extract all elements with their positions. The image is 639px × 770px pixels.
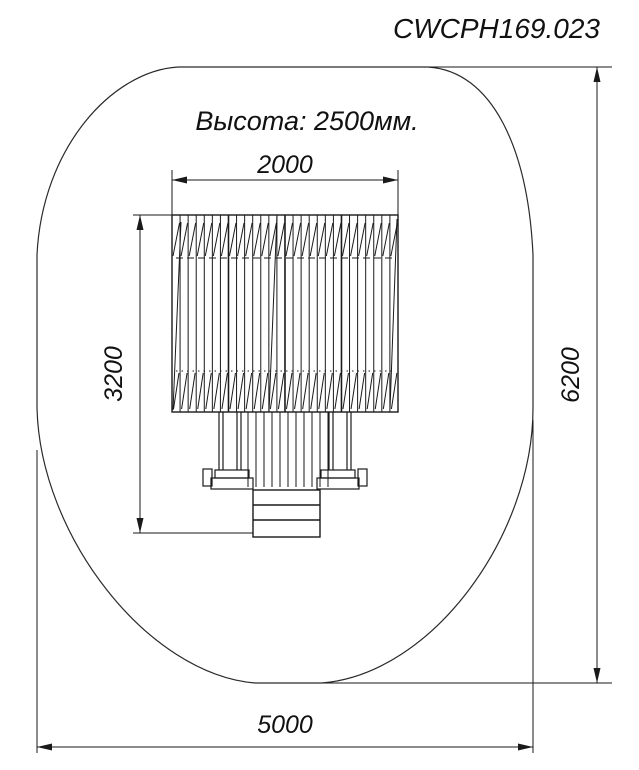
platform-slats	[248, 412, 328, 487]
dimension-6200-label: 6200	[557, 347, 585, 403]
roof-slat-edge-bottom	[319, 373, 325, 409]
roof-slat-edge-top	[181, 223, 188, 256]
roof-slat-edge-bottom	[206, 373, 212, 409]
roof-slat-edge-top	[221, 223, 228, 256]
roof-slat-edge-top	[318, 223, 325, 256]
roof-slat-edge-top	[254, 223, 261, 256]
roof-slat-edge-bottom	[270, 373, 276, 409]
height-note: Высота: 2500мм.	[195, 106, 418, 136]
roof-slat-hatching	[173, 215, 397, 412]
dimension-5000	[37, 420, 533, 753]
roof-slat-edge-bottom	[238, 373, 244, 409]
roof-slat-edge-bottom	[278, 373, 284, 409]
roof-slat-edge-top	[197, 223, 204, 256]
roof-slat-edge-top	[213, 223, 220, 256]
arrowhead-down	[594, 668, 601, 683]
roof-slat-edge-top	[294, 223, 301, 256]
roof-slat-edge-bottom	[343, 373, 349, 409]
roof-slat-edge-top	[367, 223, 374, 256]
arrowhead-right	[383, 177, 398, 184]
arrowhead-left	[37, 744, 52, 751]
roof-slat-edge-top	[229, 223, 236, 256]
roof-slat-edge-bottom	[335, 373, 341, 409]
drawing-title: CWCPH169.023	[393, 13, 600, 44]
roof-slat-edge-bottom	[198, 373, 204, 409]
roof-slat-edge-bottom	[254, 373, 260, 409]
roof-slat-edge-top	[375, 223, 382, 256]
roof-slat-edge-top	[173, 223, 180, 256]
roof-slat-edge-bottom	[359, 373, 365, 409]
roof-slat-edge-bottom	[311, 373, 317, 409]
roof-slat-edge-top	[238, 223, 245, 256]
roof-slat-edge-top	[286, 223, 293, 256]
roof-slat-edge-bottom	[230, 373, 236, 409]
arrowhead-right	[518, 744, 533, 751]
roof-slat-edge-top	[278, 223, 285, 256]
arrowhead-left	[172, 177, 187, 184]
roof-slat-edge-bottom	[327, 373, 333, 409]
roof-panel-seam	[269, 215, 277, 412]
roof-slat-edge-bottom	[190, 373, 196, 409]
roof-slat-edge-bottom	[295, 373, 301, 409]
arrowhead-up	[137, 215, 144, 230]
roof-slat-edge-bottom	[262, 373, 268, 409]
left-footer-base	[211, 478, 253, 489]
roof-slat-edge-top	[205, 223, 212, 256]
roof-slat-edge-top	[262, 223, 269, 256]
roof-slat-edge-bottom	[375, 373, 381, 409]
technical-drawing-canvas: 2000 3200 6200 5000 CWCPH169.023 Высота:…	[0, 0, 639, 770]
roof-slat-edge-bottom	[391, 373, 397, 409]
roof-slat-edge-top	[359, 223, 366, 256]
roof-slat-edge-bottom	[351, 373, 357, 409]
dimension-3200-label: 3200	[100, 346, 128, 402]
roof-slat-edge-bottom	[367, 373, 373, 409]
support-posts	[219, 412, 351, 470]
play-structure-plan	[172, 215, 398, 537]
roof-slat-edge-top	[302, 223, 309, 256]
roof-slat-edge-bottom	[222, 373, 228, 409]
roof-slat-edge-top	[310, 223, 317, 256]
roof-slat-edge-bottom	[246, 373, 252, 409]
roof-slat-edge-top	[334, 223, 341, 256]
arrowhead-down	[137, 518, 144, 533]
roof-slat-edge-bottom	[383, 373, 389, 409]
right-footer-plate	[321, 470, 355, 478]
dimension-2000-label: 2000	[256, 151, 313, 179]
roof-slat-edge-bottom	[182, 373, 188, 409]
roof-slat-edge-top	[383, 223, 390, 256]
roof-slat-edge-bottom	[214, 373, 220, 409]
right-footer-base	[317, 478, 359, 489]
roof-slat-edge-top	[326, 223, 333, 256]
roof-slat-edge-top	[246, 223, 253, 256]
roof-slat-edge-bottom	[286, 373, 292, 409]
roof-slat-edge-top	[351, 223, 358, 256]
left-footer-plate	[215, 470, 249, 478]
roof-slat-edge-top	[342, 223, 349, 256]
steps-outline	[253, 490, 320, 537]
arrowhead-up	[594, 67, 601, 82]
dimension-5000-label: 5000	[257, 711, 313, 739]
roof-slat-edge-top	[189, 223, 196, 256]
roof-slat-edge-bottom	[303, 373, 309, 409]
